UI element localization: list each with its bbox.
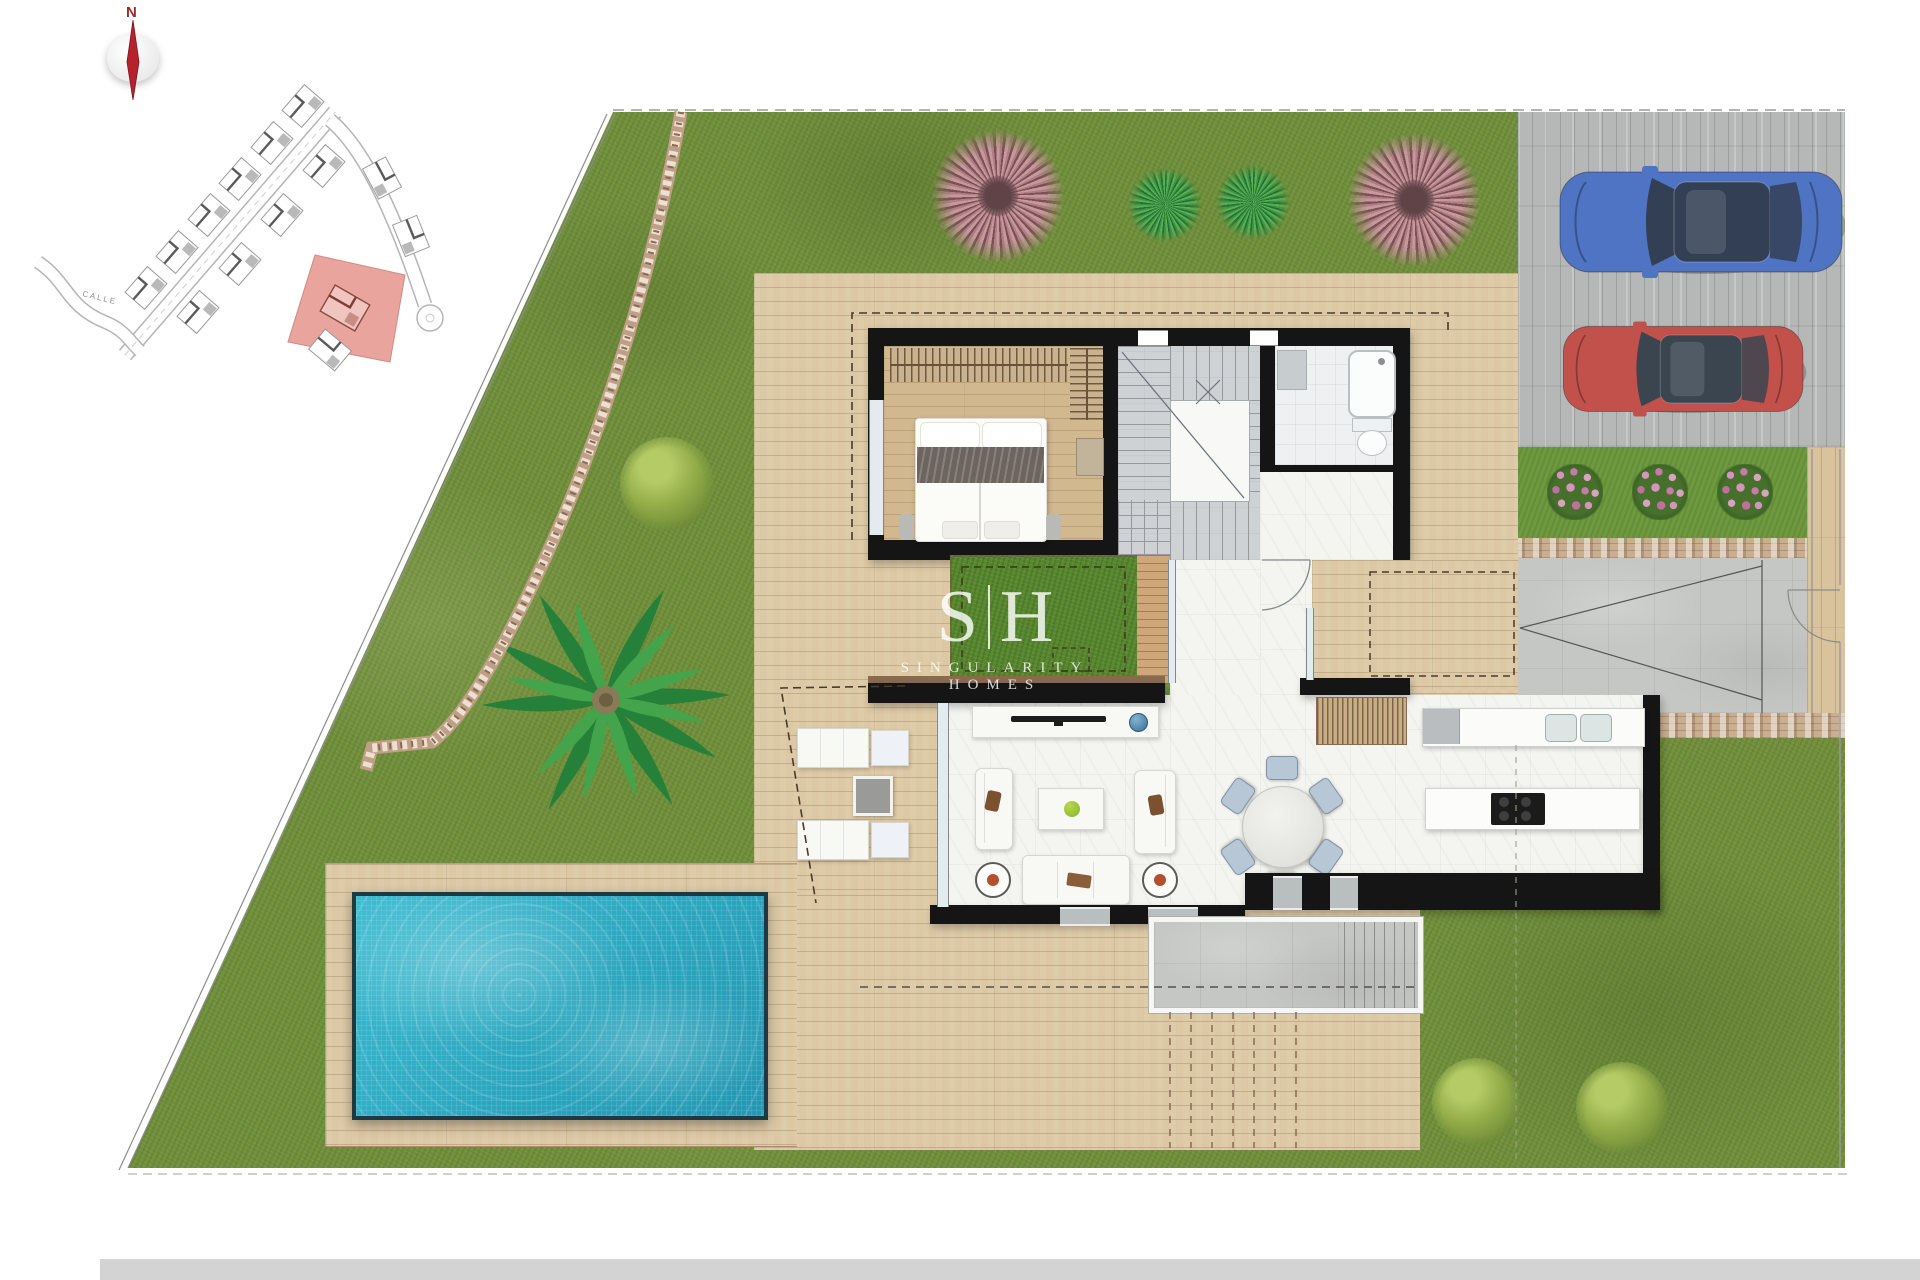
deck-side-table bbox=[853, 776, 893, 816]
speaker bbox=[1129, 713, 1148, 732]
fan-palm bbox=[1128, 168, 1202, 242]
sofa-throw bbox=[1066, 872, 1092, 888]
courtyard-walkway bbox=[1137, 555, 1170, 683]
toilet-bowl bbox=[1357, 430, 1387, 456]
appliance bbox=[1423, 709, 1460, 744]
stone-border bbox=[1516, 538, 1807, 558]
kitchen-counter bbox=[1422, 708, 1645, 747]
side-table bbox=[975, 862, 1011, 898]
side-path-wood bbox=[1807, 447, 1845, 713]
terrace-door bbox=[1060, 907, 1110, 926]
sofa-cushion-line bbox=[1093, 862, 1094, 898]
entrance-ramp bbox=[1516, 558, 1845, 713]
kitchen-island bbox=[1425, 788, 1640, 830]
tv-stand bbox=[1054, 722, 1063, 726]
tree-core bbox=[978, 176, 1018, 216]
garden-shrub bbox=[1432, 1058, 1520, 1146]
pink-flowering-tree bbox=[932, 130, 1064, 262]
bedside-stool bbox=[1046, 514, 1061, 540]
sun-lounger bbox=[797, 820, 869, 860]
side-table bbox=[1142, 862, 1178, 898]
dining-chair bbox=[1266, 756, 1298, 780]
hallway-east bbox=[1260, 560, 1312, 695]
garden-shrub bbox=[620, 437, 714, 531]
pool-water bbox=[356, 896, 764, 1116]
flower-cluster bbox=[1717, 464, 1773, 520]
burner bbox=[1521, 811, 1531, 821]
fan-palm bbox=[1216, 165, 1290, 239]
bedside-stool bbox=[899, 514, 914, 540]
foot-cushion bbox=[984, 521, 1020, 539]
hallway bbox=[1170, 560, 1260, 705]
staircase bbox=[1118, 346, 1260, 560]
kitchen-north-wall bbox=[1300, 678, 1410, 695]
bed-throw bbox=[917, 447, 1044, 483]
window bbox=[1138, 330, 1168, 346]
bathtub-faucet bbox=[1378, 358, 1385, 365]
floor-plan-scene: S H SINGULARITY HOMES N bbox=[0, 0, 1920, 1280]
dresser bbox=[1076, 438, 1104, 476]
kitchen-south-wall bbox=[1245, 873, 1660, 910]
armchair bbox=[1134, 770, 1176, 854]
armchair bbox=[975, 768, 1013, 850]
bedroom-window bbox=[869, 400, 884, 535]
sun-lounger-back bbox=[871, 822, 909, 858]
red-car bbox=[1560, 306, 1808, 432]
kitchen-sink bbox=[1580, 714, 1612, 742]
window bbox=[1250, 330, 1278, 346]
wardrobe bbox=[890, 348, 1068, 382]
watermark-monogram: S H bbox=[855, 582, 1135, 652]
garden-shrub bbox=[1576, 1062, 1668, 1154]
watermark-initial: H bbox=[1000, 582, 1053, 652]
sofa-cushion-line bbox=[1057, 862, 1058, 898]
bed bbox=[915, 418, 1047, 542]
site-map: CALLE bbox=[30, 50, 510, 390]
stair-treads bbox=[1170, 346, 1260, 400]
terrace-steps bbox=[1344, 922, 1418, 1008]
tree-core bbox=[1394, 180, 1434, 220]
cooktop bbox=[1491, 793, 1545, 825]
watermark-divider bbox=[988, 585, 990, 649]
courtyard-glass bbox=[1168, 560, 1176, 683]
bathroom-vanity bbox=[1277, 350, 1307, 390]
watermark: S H SINGULARITY HOMES bbox=[855, 582, 1135, 694]
south-terrace bbox=[1148, 916, 1424, 1014]
sun-lounger-back bbox=[871, 730, 909, 766]
pillow bbox=[920, 422, 980, 449]
burner bbox=[1499, 811, 1509, 821]
bathtub bbox=[1348, 350, 1396, 418]
living-window-slider bbox=[937, 703, 949, 907]
apple-decor bbox=[1064, 801, 1080, 817]
burner bbox=[1499, 797, 1509, 807]
palm-tree bbox=[466, 560, 746, 840]
watermark-brand: SINGULARITY HOMES bbox=[855, 660, 1135, 694]
kitchen-sink bbox=[1545, 714, 1577, 742]
bottom-bar bbox=[100, 1259, 1920, 1280]
flower-cluster bbox=[1632, 464, 1688, 520]
burner bbox=[1521, 797, 1531, 807]
tv-console bbox=[972, 706, 1159, 738]
kitchen-window bbox=[1330, 876, 1358, 910]
swimming-pool bbox=[352, 892, 768, 1120]
pillow bbox=[982, 422, 1042, 449]
foot-cushion bbox=[942, 521, 978, 539]
wardrobe bbox=[1070, 348, 1103, 420]
deck-east-room bbox=[1312, 560, 1518, 690]
pantry-cabinet bbox=[1316, 697, 1407, 745]
kitchen-window bbox=[1273, 876, 1302, 910]
door-frame bbox=[1306, 608, 1314, 680]
stair-treads bbox=[1118, 500, 1260, 560]
watermark-initial: S bbox=[937, 582, 978, 652]
landing bbox=[1260, 472, 1393, 560]
flower-cluster bbox=[1547, 464, 1603, 520]
sofa bbox=[1022, 855, 1130, 905]
coffee-table bbox=[1038, 788, 1104, 830]
sun-lounger bbox=[797, 728, 869, 768]
stair-void bbox=[1170, 400, 1250, 502]
pink-flowering-tree bbox=[1348, 134, 1480, 266]
blue-car bbox=[1556, 166, 1848, 278]
duvet-fold bbox=[979, 483, 981, 540]
